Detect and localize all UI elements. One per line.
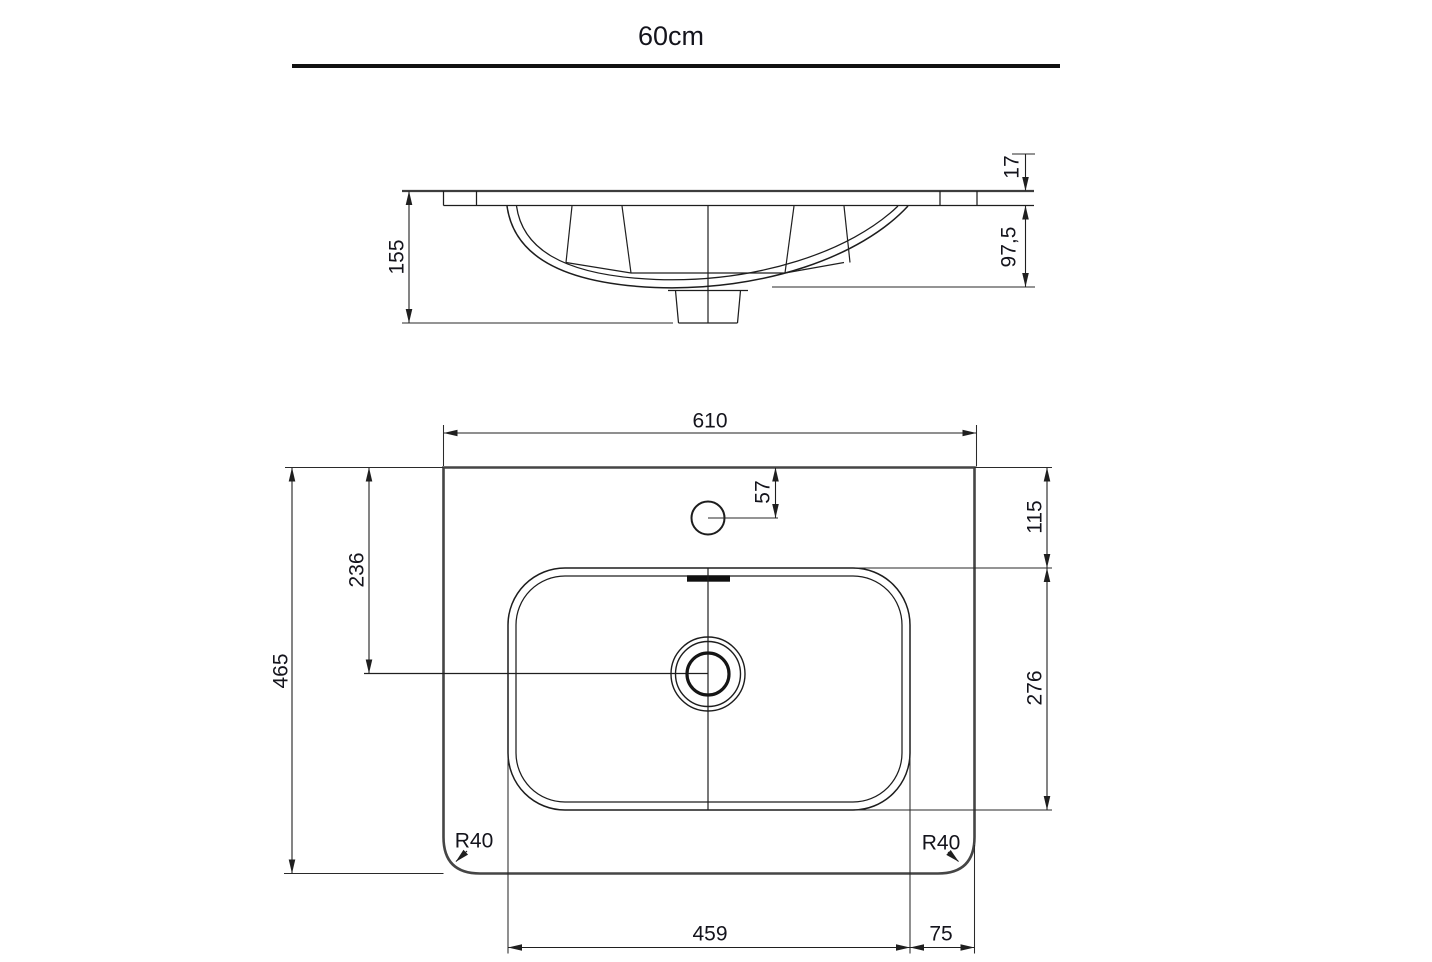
title-block: 60cm [292,21,1060,68]
dim-label-97-5: 97,5 [998,227,1021,268]
side-bowl-inner-curve [517,206,899,280]
drain-trap-left-line [676,291,679,324]
side-bowl-projection-line [844,206,850,263]
callout-corner-radius-right: R40 [922,832,961,862]
dim-label-r40-left: R40 [455,830,494,853]
top-plan-view: 610 465 236 57 115 276 [270,410,1053,954]
side-bowl-projection-line [566,206,572,263]
dim-bowl-depth: 276 [855,569,1052,811]
dim-label-155: 155 [386,239,409,274]
dim-label-276: 276 [1024,670,1047,705]
title-underline [292,64,1060,68]
side-bowl-projection-line [622,206,631,273]
dim-bowl-width: 459 75 [508,758,975,954]
dim-label-57: 57 [752,480,775,503]
bowl-outer-outline [508,568,910,810]
dim-faucet-from-back: 57 [752,468,776,518]
dim-label-r40-right: R40 [922,832,961,855]
callout-corner-radius-left: R40 [455,830,494,862]
dim-label-115: 115 [1024,500,1047,533]
dim-label-465: 465 [270,653,293,688]
dim-rim-thickness: 17 [1001,154,1036,191]
drain-trap-right-line [738,291,741,324]
dim-label-459: 459 [692,923,727,946]
dim-label-75: 75 [929,923,952,946]
side-section-view: 155 17 97,5 [386,154,1036,323]
dim-label-610: 610 [692,410,727,433]
dim-total-depth: 465 [270,468,293,873]
side-bowl-projection-line [566,263,631,274]
dim-bowl-section-depth: 97,5 [772,206,1035,287]
dim-label-17: 17 [1001,155,1024,178]
dim-bowl-offset-back: 115 [855,468,1052,568]
drawing-sheet: 60cm 155 [0,0,1432,962]
basin-technical-drawing: 60cm 155 [0,0,1432,962]
dim-drain-from-back: 236 [346,468,370,673]
page-title: 60cm [638,21,704,51]
dim-total-width: 610 [444,410,977,467]
dim-total-height: 155 [386,192,674,324]
leader-line [456,851,467,862]
dim-label-236: 236 [346,552,369,587]
basin-outer-outline [444,468,975,874]
bowl-inner-outline [516,576,902,802]
